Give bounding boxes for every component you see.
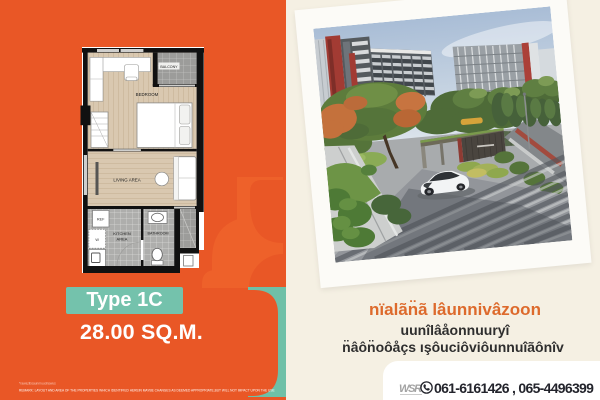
svg-text:LIVING AREA: LIVING AREA	[113, 178, 140, 183]
svg-text:BALCONY: BALCONY	[160, 65, 178, 69]
svg-text:REF: REF	[97, 218, 105, 222]
svg-text:W: W	[95, 238, 99, 242]
svg-text:AREA: AREA	[117, 237, 128, 242]
svg-text:KITCHEN: KITCHEN	[113, 231, 131, 236]
svg-text:BATHROOM: BATHROOM	[147, 232, 168, 236]
svg-text:BEDROOM: BEDROOM	[136, 92, 159, 97]
